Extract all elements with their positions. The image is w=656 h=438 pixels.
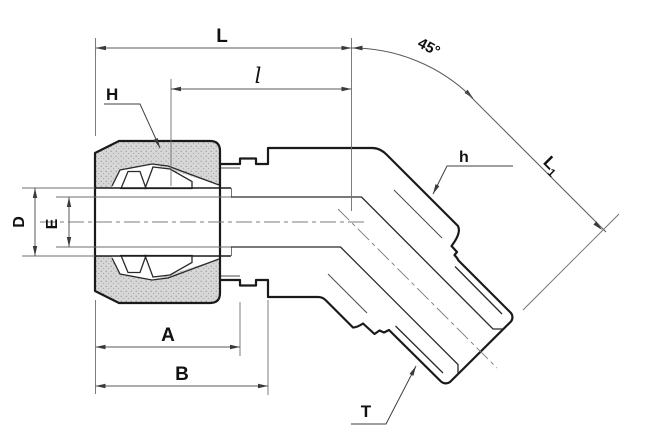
fitting-drawing: L l 45° L1 H: [0, 0, 656, 438]
dim-label-L: L: [216, 26, 228, 47]
dim-label-B: B: [175, 364, 189, 385]
dim-label-E: E: [44, 218, 61, 229]
dim-label-D: D: [11, 216, 28, 228]
dim-label-l: l: [255, 64, 262, 88]
dim-label-h: h: [459, 149, 469, 166]
dim-label-H: H: [106, 85, 118, 104]
dim-label-A: A: [161, 325, 175, 346]
dim-label-T: T: [361, 402, 372, 421]
drawing-canvas: L l 45° L1 H: [0, 0, 656, 438]
